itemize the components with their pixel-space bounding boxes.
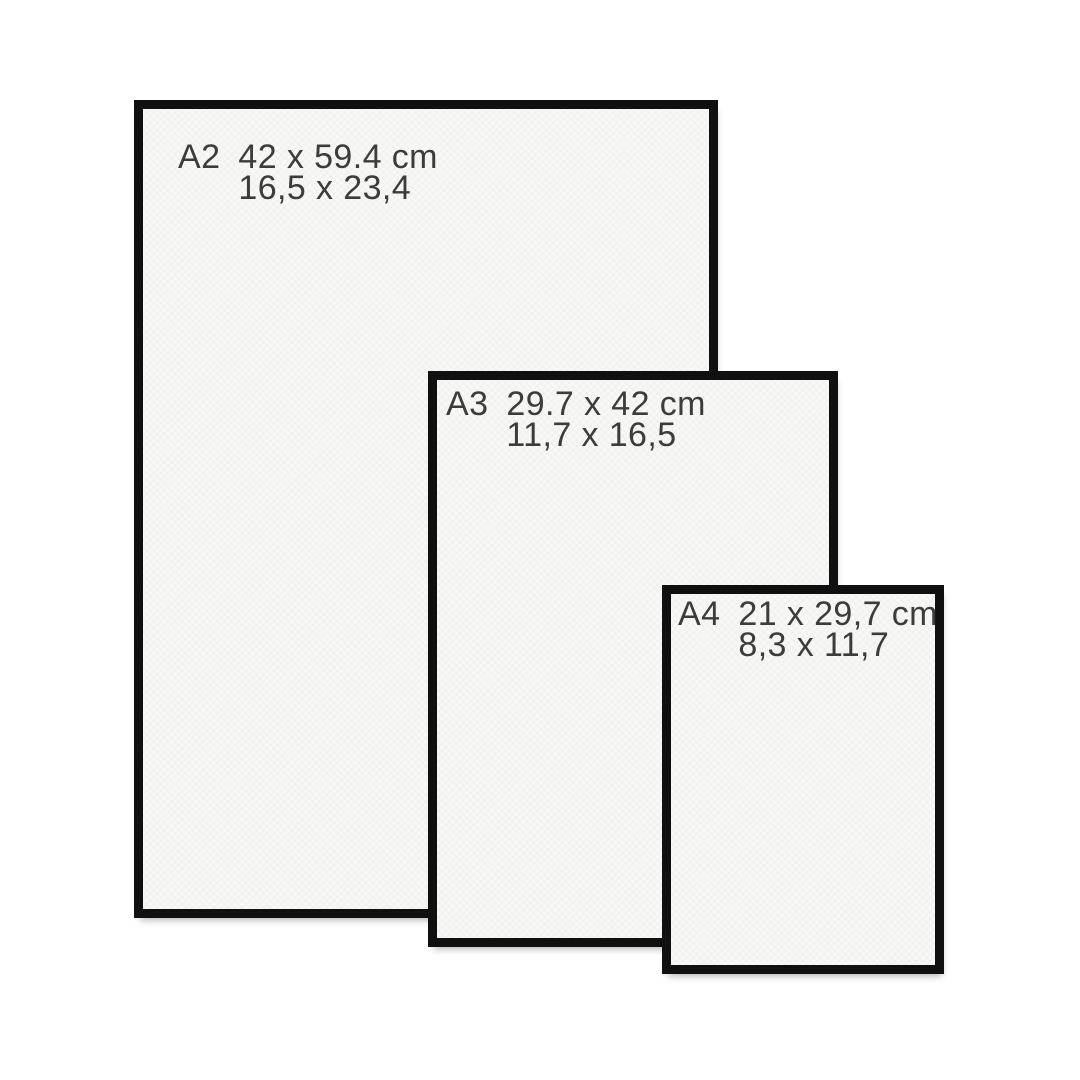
size-name-a4: A4 bbox=[678, 599, 720, 630]
size-dimensions-a2: 42 x 59.4 cm 16,5 x 23,4 bbox=[238, 142, 437, 204]
dimensions-inches-a3: 11,7 x 16,5 bbox=[506, 420, 705, 451]
frame-a4-label: A4 21 x 29,7 cm 8,3 x 11,7 bbox=[671, 594, 935, 661]
dimensions-inches-a4: 8,3 x 11,7 bbox=[738, 630, 937, 661]
frame-a2-label: A2 42 x 59.4 cm 16,5 x 23,4 bbox=[143, 109, 709, 204]
size-name-a2: A2 bbox=[178, 142, 220, 173]
size-name-a3: A3 bbox=[446, 389, 488, 420]
size-comparison-diagram: A2 42 x 59.4 cm 16,5 x 23,4 A3 29.7 x 42… bbox=[0, 0, 1080, 1080]
size-dimensions-a3: 29.7 x 42 cm 11,7 x 16,5 bbox=[506, 389, 705, 451]
dimensions-inches-a2: 16,5 x 23,4 bbox=[238, 173, 437, 204]
frame-a3-label: A3 29.7 x 42 cm 11,7 x 16,5 bbox=[437, 380, 829, 451]
size-dimensions-a4: 21 x 29,7 cm 8,3 x 11,7 bbox=[738, 599, 937, 661]
frame-a4: A4 21 x 29,7 cm 8,3 x 11,7 bbox=[662, 585, 944, 974]
